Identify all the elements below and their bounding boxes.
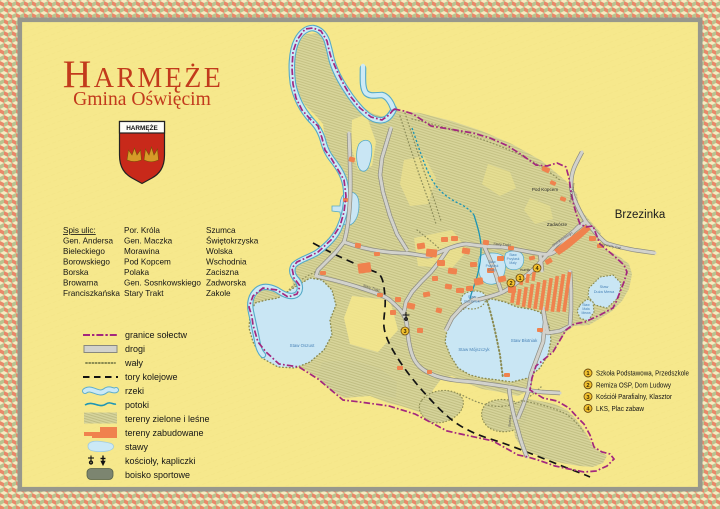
svg-text:1: 1	[518, 276, 521, 282]
svg-text:2: 2	[509, 281, 512, 287]
svg-text:Mewa: Mewa	[581, 311, 590, 315]
svg-text:kościoły, kapliczki: kościoły, kapliczki	[125, 456, 195, 466]
svg-text:tereny zielone i leśne: tereny zielone i leśne	[125, 414, 210, 424]
svg-text:Morawina: Morawina	[124, 247, 160, 256]
svg-text:Zakole: Zakole	[206, 289, 231, 298]
svg-text:Remiza OSP, Dom Ludowy: Remiza OSP, Dom Ludowy	[596, 380, 671, 389]
svg-text:Bocianek: Bocianek	[464, 300, 479, 304]
svg-text:potoki: potoki	[125, 400, 149, 410]
svg-text:Duży: Duży	[488, 268, 496, 272]
svg-text:boisko sportowe: boisko sportowe	[125, 470, 190, 480]
svg-text:Mały: Mały	[509, 261, 516, 265]
svg-text:Borska: Borska	[63, 268, 89, 277]
svg-text:Wolska: Wolska	[206, 247, 233, 256]
svg-text:drogi: drogi	[125, 344, 145, 354]
svg-text:Świętokrzyska: Świętokrzyska	[206, 235, 259, 246]
svg-text:Brzezinka: Brzezinka	[615, 209, 666, 221]
svg-text:Staw: Staw	[468, 295, 477, 299]
svg-text:Browarna: Browarna	[63, 279, 98, 288]
svg-text:Borowskiego: Borowskiego	[63, 258, 110, 267]
svg-text:Szkoła Podstawowa, Przedszkole: Szkoła Podstawowa, Przedszkole	[596, 369, 689, 378]
svg-text:Zaciszna: Zaciszna	[206, 268, 239, 277]
svg-text:Por. Króla: Por. Króla	[124, 226, 160, 235]
svg-text:tereny zabudowane: tereny zabudowane	[125, 428, 204, 438]
svg-text:stawy: stawy	[125, 442, 149, 452]
svg-text:Spis ulic:: Spis ulic:	[63, 226, 96, 235]
svg-text:Bieleckiego: Bieleckiego	[63, 247, 105, 256]
svg-text:Franciszkańska: Franciszkańska	[63, 289, 120, 298]
svg-text:Kurnik: Kurnik	[520, 268, 530, 272]
svg-text:Gen. Andersa: Gen. Andersa	[63, 237, 114, 246]
svg-text:Duża Mewa: Duża Mewa	[594, 289, 615, 294]
svg-text:Wschodnia: Wschodnia	[206, 258, 247, 267]
svg-text:Zadwórze: Zadwórze	[547, 222, 568, 227]
svg-text:Gen. Maczka: Gen. Maczka	[124, 237, 173, 246]
svg-text:Staw Oszust: Staw Oszust	[290, 343, 315, 348]
svg-text:granice sołectw: granice sołectw	[125, 330, 188, 340]
svg-text:Gen. Sosnkowskiego: Gen. Sosnkowskiego	[124, 279, 201, 288]
svg-text:rzeki: rzeki	[125, 386, 144, 396]
svg-text:Szumca: Szumca	[206, 226, 236, 235]
svg-text:Borska: Borska	[508, 415, 512, 426]
svg-text:Staw Mójszczyk: Staw Mójszczyk	[458, 347, 490, 352]
svg-text:LKS, Plac zabaw: LKS, Plac zabaw	[596, 404, 644, 413]
svg-text:Kościół Parafialny, Klasztor: Kościół Parafialny, Klasztor	[596, 392, 672, 401]
svg-text:Pod Kopcem: Pod Kopcem	[532, 187, 558, 192]
svg-text:2: 2	[586, 383, 589, 389]
svg-text:Staw Błotniak: Staw Błotniak	[511, 338, 538, 343]
svg-text:Gmina Oświęcim: Gmina Oświęcim	[73, 89, 211, 110]
svg-text:tory kolejowe: tory kolejowe	[125, 372, 178, 382]
svg-text:3: 3	[403, 329, 406, 335]
svg-text:Zadworska: Zadworska	[206, 279, 246, 288]
svg-text:Stary Trakt: Stary Trakt	[124, 289, 164, 298]
svg-text:HARMĘŻE: HARMĘŻE	[126, 123, 158, 132]
svg-text:Pod Kopcem: Pod Kopcem	[124, 258, 171, 267]
svg-text:wały: wały	[124, 358, 144, 368]
svg-text:Polaka: Polaka	[124, 268, 149, 277]
